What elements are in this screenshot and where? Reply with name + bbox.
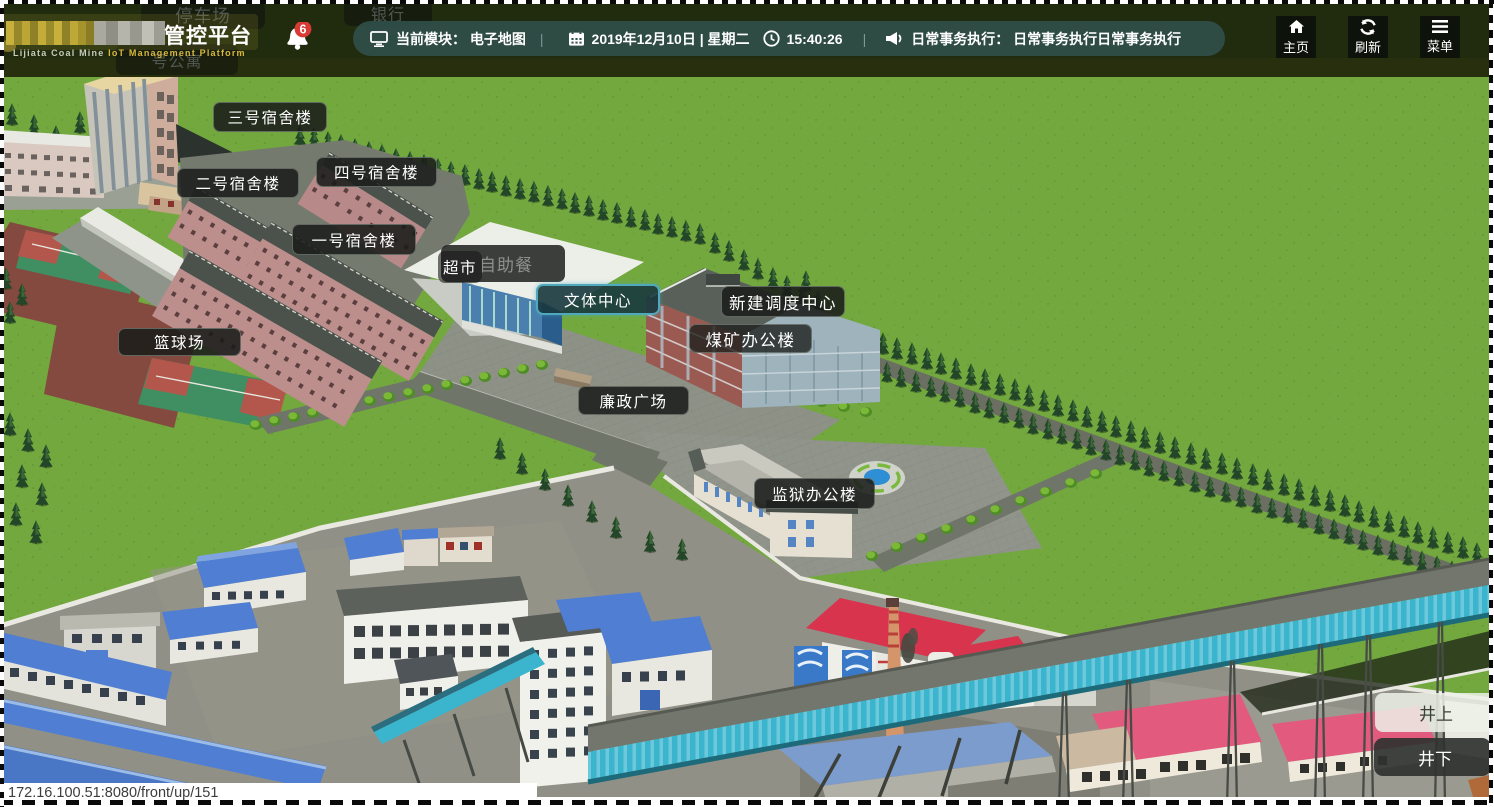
svg-text:6: 6 — [300, 23, 307, 37]
